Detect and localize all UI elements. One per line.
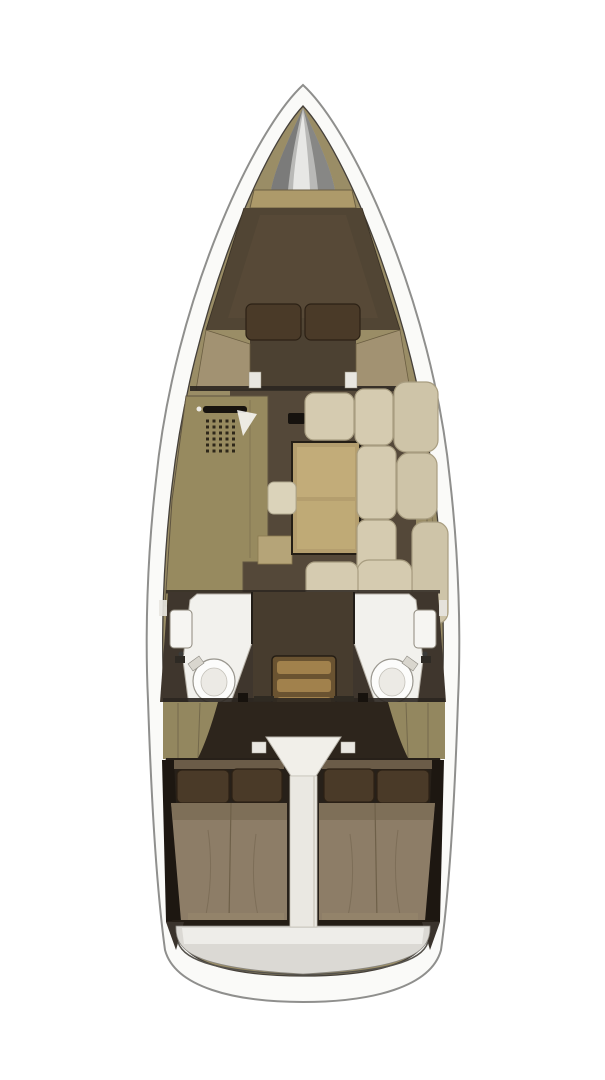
table-leaf-top [297, 447, 355, 497]
berth-pillow [246, 304, 301, 340]
handrail [254, 696, 274, 701]
settee-back [397, 453, 437, 519]
sink-faucet [179, 652, 184, 657]
sink-faucet [423, 652, 428, 657]
mattress-top-band [319, 803, 435, 820]
table-leaf-bottom [297, 501, 355, 549]
settee-back [394, 382, 438, 452]
head-fixture [175, 656, 185, 663]
settee-cushion [355, 389, 393, 445]
bed-pillow [324, 769, 374, 802]
settee-cushion [305, 393, 354, 440]
stern-platform-highlight [182, 928, 424, 944]
settee-cushion [357, 446, 396, 519]
handrail [334, 696, 354, 701]
bed-pillow [377, 770, 429, 803]
floor-hatch [288, 413, 305, 424]
bulkhead-latch [238, 693, 248, 702]
bed-foot-trim [322, 913, 418, 921]
head-fixture [421, 656, 431, 663]
starboard-aft-cabin [319, 760, 444, 921]
bed-pillow [232, 769, 282, 802]
bulkhead-door-gap [249, 372, 261, 388]
head-sink [170, 610, 192, 648]
bulkhead-latch [358, 693, 368, 702]
salon-stool [268, 482, 296, 514]
landing-stub [252, 742, 266, 753]
mattress-top-band [171, 803, 287, 820]
bed-headboard [322, 760, 432, 769]
galley-knob [197, 407, 202, 412]
landing-stub [341, 742, 355, 753]
bow-shelf [250, 190, 356, 208]
nav-seat [258, 536, 292, 564]
bed-headboard [174, 760, 284, 769]
port-aft-cabin [162, 760, 287, 921]
head-hatch [439, 600, 447, 616]
toilet-seat [201, 668, 227, 696]
head-hatch [159, 600, 167, 616]
bulkhead-door-gap [345, 372, 357, 388]
bed-foot-trim [188, 913, 284, 921]
head-sink [414, 610, 436, 648]
center-column [290, 776, 317, 927]
yacht-floorplan [0, 0, 605, 1080]
stair-tread [277, 661, 331, 674]
bed-pillow [177, 770, 229, 803]
berth-pillow [305, 304, 360, 340]
mid-bulkhead [163, 698, 445, 702]
toilet-seat [379, 668, 405, 696]
stair-tread [277, 679, 331, 692]
